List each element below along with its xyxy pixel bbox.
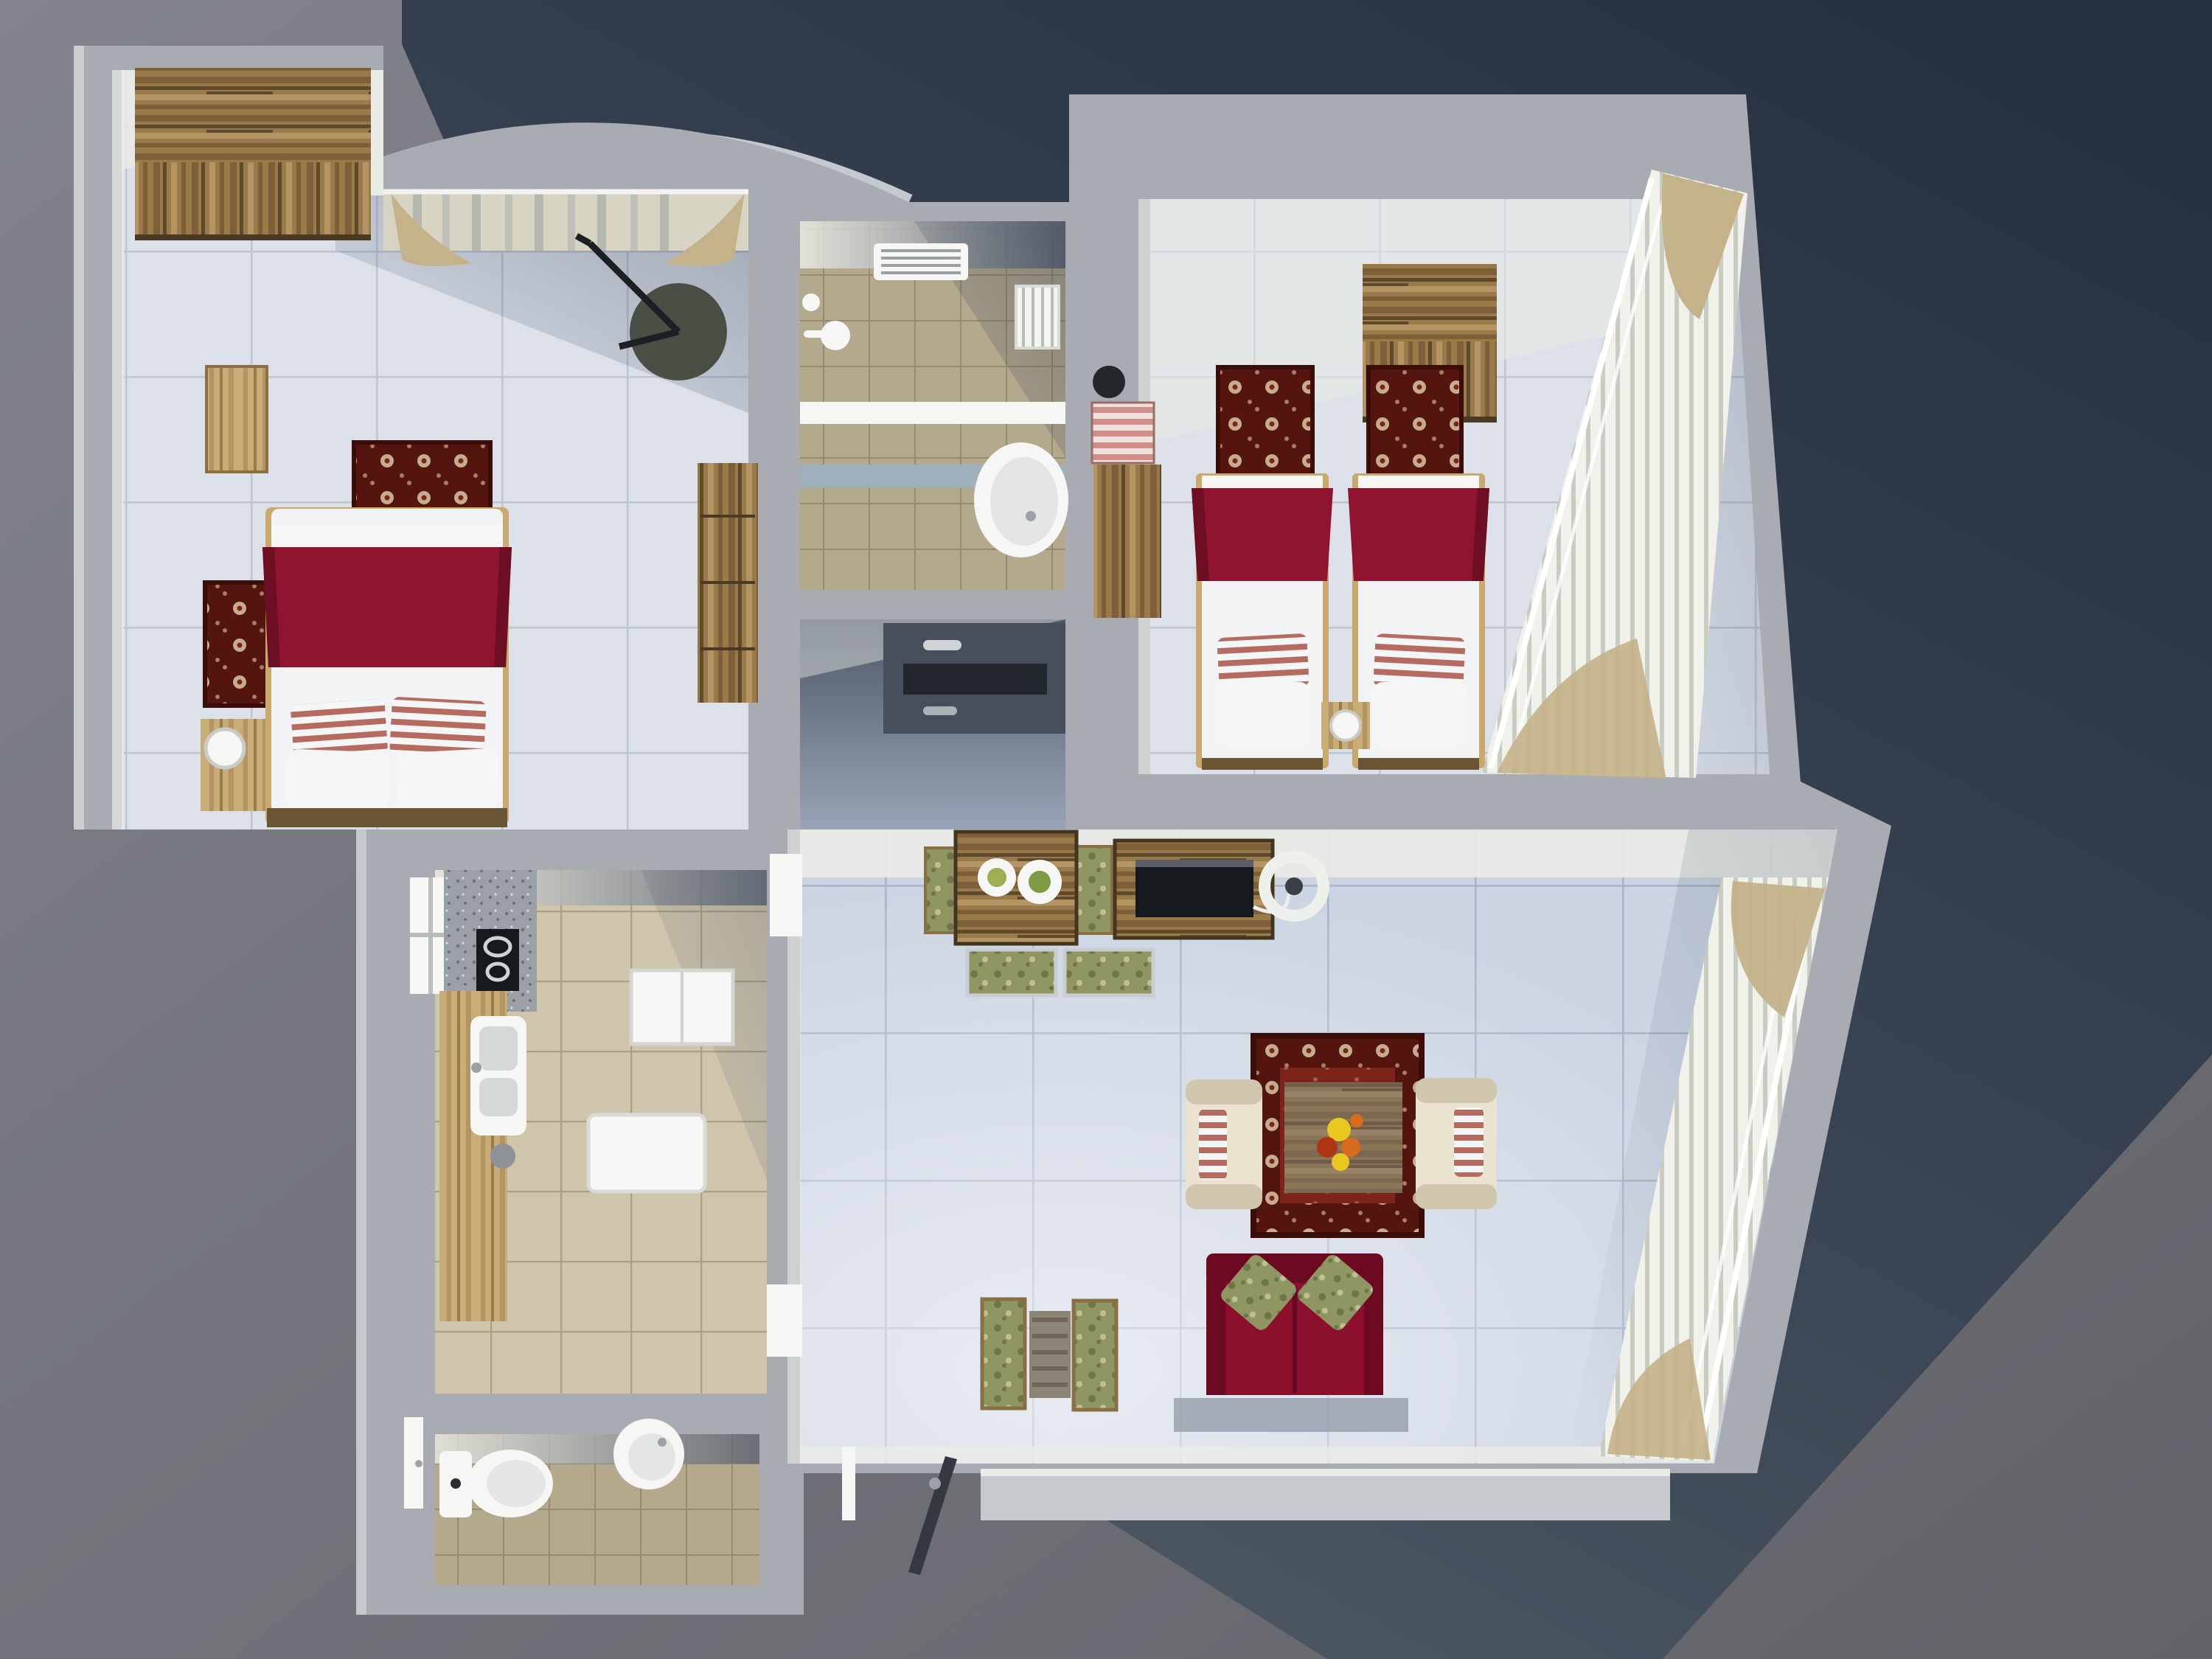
bedroom2-bed-left (1192, 473, 1333, 770)
door-closet (767, 1284, 802, 1357)
kitchen-cooktop (476, 929, 519, 991)
side-chair (1074, 1301, 1116, 1410)
kitchen-trash-bin (490, 1144, 515, 1169)
bedroom1-nightstand-bottom (201, 719, 265, 811)
armchair-right (1416, 1078, 1497, 1209)
floor-plan-canvas (0, 0, 2212, 1659)
striped-pillow (1454, 1107, 1484, 1177)
bedroom1-double-bed (262, 507, 512, 827)
living-bottom-wall-face (800, 1447, 1714, 1463)
bedroom1-wardrobe (135, 68, 371, 240)
side-chair (982, 1299, 1025, 1408)
wc-toilet (439, 1450, 553, 1517)
outer-wall-highlight (74, 46, 84, 829)
red-sofa (1206, 1252, 1383, 1395)
wc-washbasin (613, 1419, 684, 1489)
apartment-render (0, 0, 2212, 1659)
bedroom1-dresser (698, 463, 758, 703)
wc-door (404, 1417, 423, 1509)
bedroom1-rug-right (354, 442, 490, 516)
bedroom2-dresser (1092, 366, 1161, 618)
bathroom-wall-vent (874, 243, 968, 280)
kitchen-sink (470, 1016, 526, 1135)
bedroom1-left-wall-face (112, 70, 124, 829)
door-to-kitchen (770, 854, 802, 936)
bathroom (800, 221, 1068, 590)
bedroom2-laundry-basket (1092, 403, 1154, 463)
bedroom1-nightstand-top (206, 366, 267, 472)
bedroom2-rug-right (1368, 367, 1461, 479)
bathroom-radiator (1016, 286, 1059, 348)
kitchen-fridge (631, 970, 733, 1044)
bedroom2-nightstand (1321, 702, 1370, 749)
tv (1135, 860, 1253, 917)
outer-wall-highlight (356, 829, 366, 1615)
bathroom-partition (800, 402, 1065, 424)
dining-chair-bottom-right (1065, 950, 1153, 995)
doormat (1174, 1398, 1408, 1432)
bathroom-washbasin (974, 442, 1068, 557)
kitchen-washing-machine (588, 1115, 705, 1192)
hallway (800, 619, 1065, 829)
bedroom-2 (1092, 170, 1770, 779)
dining-chair-bottom-left (967, 950, 1056, 995)
bedroom2-rug-left (1218, 367, 1312, 479)
striped-pillow (1199, 1109, 1227, 1180)
dining-chair-right (1077, 846, 1112, 933)
living-room (767, 829, 1837, 1575)
side-seating (982, 1299, 1116, 1410)
armchair-left (1186, 1079, 1262, 1209)
coffee-table (1284, 1082, 1402, 1193)
hallway-wardrobe (883, 623, 1065, 734)
kitchen (410, 870, 767, 1394)
bedroom2-ball-lamp (1093, 366, 1125, 398)
terrace-step (981, 1469, 1670, 1520)
wc (404, 1417, 759, 1585)
